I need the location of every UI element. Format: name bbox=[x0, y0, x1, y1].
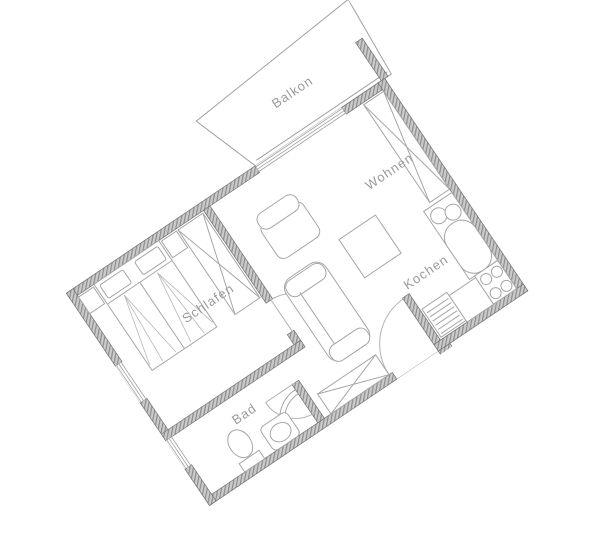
floor-plan-page: Balkon Wohnen Schlafen Kochen Bad bbox=[0, 0, 600, 535]
floor-plan: Balkon Wohnen Schlafen Kochen Bad bbox=[14, 0, 541, 510]
floor-plan-drawing: Balkon Wohnen Schlafen Kochen Bad bbox=[14, 0, 541, 510]
